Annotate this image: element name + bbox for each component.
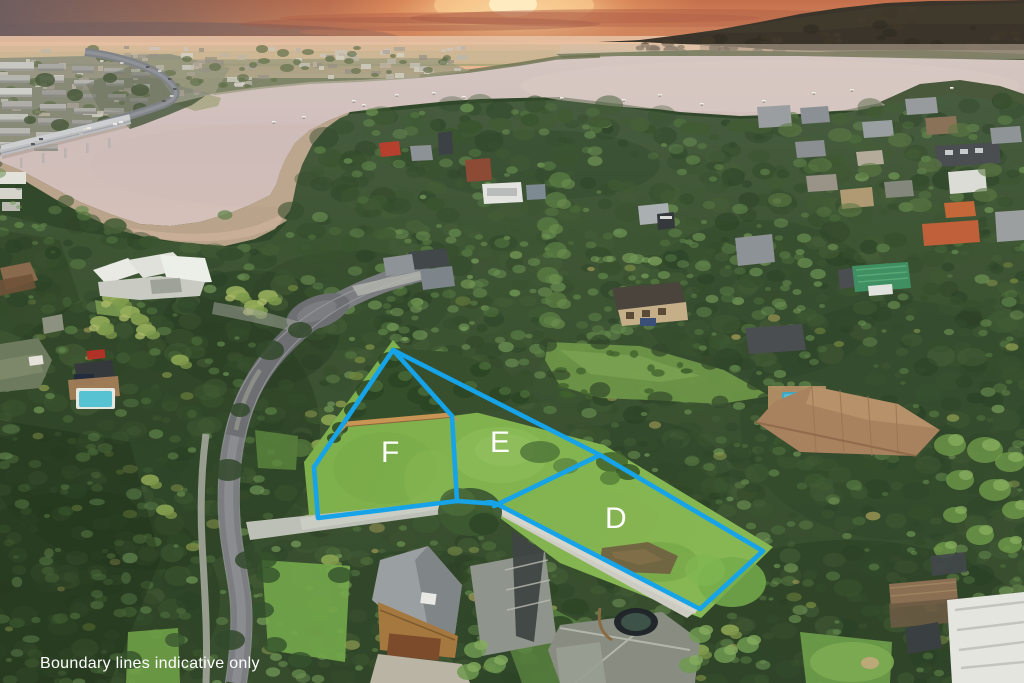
svg-text:Boundary lines indicative only: Boundary lines indicative only [40,655,260,672]
svg-text:E: E [490,426,510,459]
svg-text:F: F [381,436,399,469]
svg-text:D: D [605,502,627,535]
